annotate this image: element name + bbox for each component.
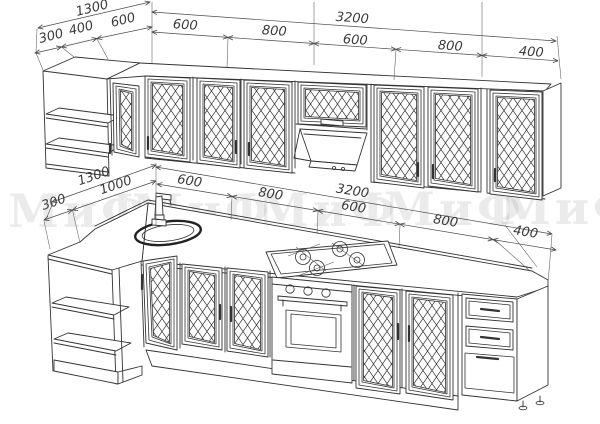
dim-label: 600 [109,10,137,31]
shelf [54,333,131,351]
dim-label: 400 [67,18,95,39]
lattice-door [244,80,292,173]
dim-label: 300 [37,26,65,47]
lattice-door [182,264,222,350]
lattice-door [356,286,400,394]
lattice-door [406,291,453,400]
shelf [46,108,121,123]
kitchen-drawing-page: МиФ МиФ МиФ МиФ МиФ [0,0,600,424]
dim-label-upper-wall-overall: 3200 [335,10,369,27]
shelf [52,297,129,315]
lattice-door [428,87,478,192]
plinth-front [54,360,118,384]
drawer-unit [462,286,548,410]
dim-label: 800 [437,38,463,55]
lattice-door [197,78,240,168]
oven [272,277,352,383]
lattice-door [113,83,139,157]
dim-label: 600 [172,17,198,34]
lattice-door [143,256,177,350]
kitchen-technical-drawing: МиФ МиФ МиФ МиФ МиФ [0,0,600,424]
dim-label: 400 [518,44,544,61]
dim-label: 400 [512,223,539,242]
lower-open-corner-shelf [48,256,142,384]
dim-label: 600 [342,32,368,49]
upper-open-corner-shelf [43,71,121,176]
lattice-door [227,268,268,357]
lattice-door [145,76,190,162]
drawer-unit-side-panel [517,286,548,401]
lattice-door [490,90,542,200]
upper-end-side-panel [543,83,561,196]
plinth-side [118,366,142,384]
lattice-door [374,85,424,188]
dim-label-upper-left-overall: 1300 [74,0,110,20]
dim-label: 800 [261,23,287,40]
